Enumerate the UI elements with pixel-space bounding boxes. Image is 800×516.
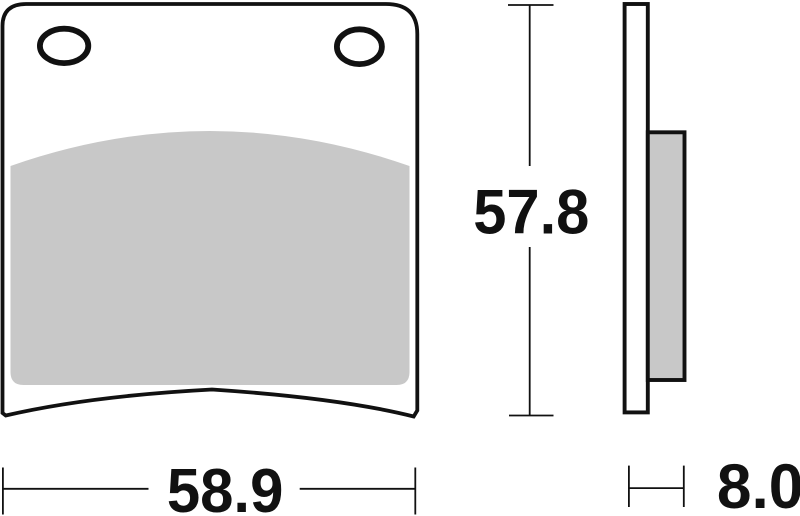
svg-text:57.8: 57.8 xyxy=(473,177,589,248)
svg-text:58.9: 58.9 xyxy=(167,456,284,516)
svg-text:8.0: 8.0 xyxy=(717,452,800,516)
